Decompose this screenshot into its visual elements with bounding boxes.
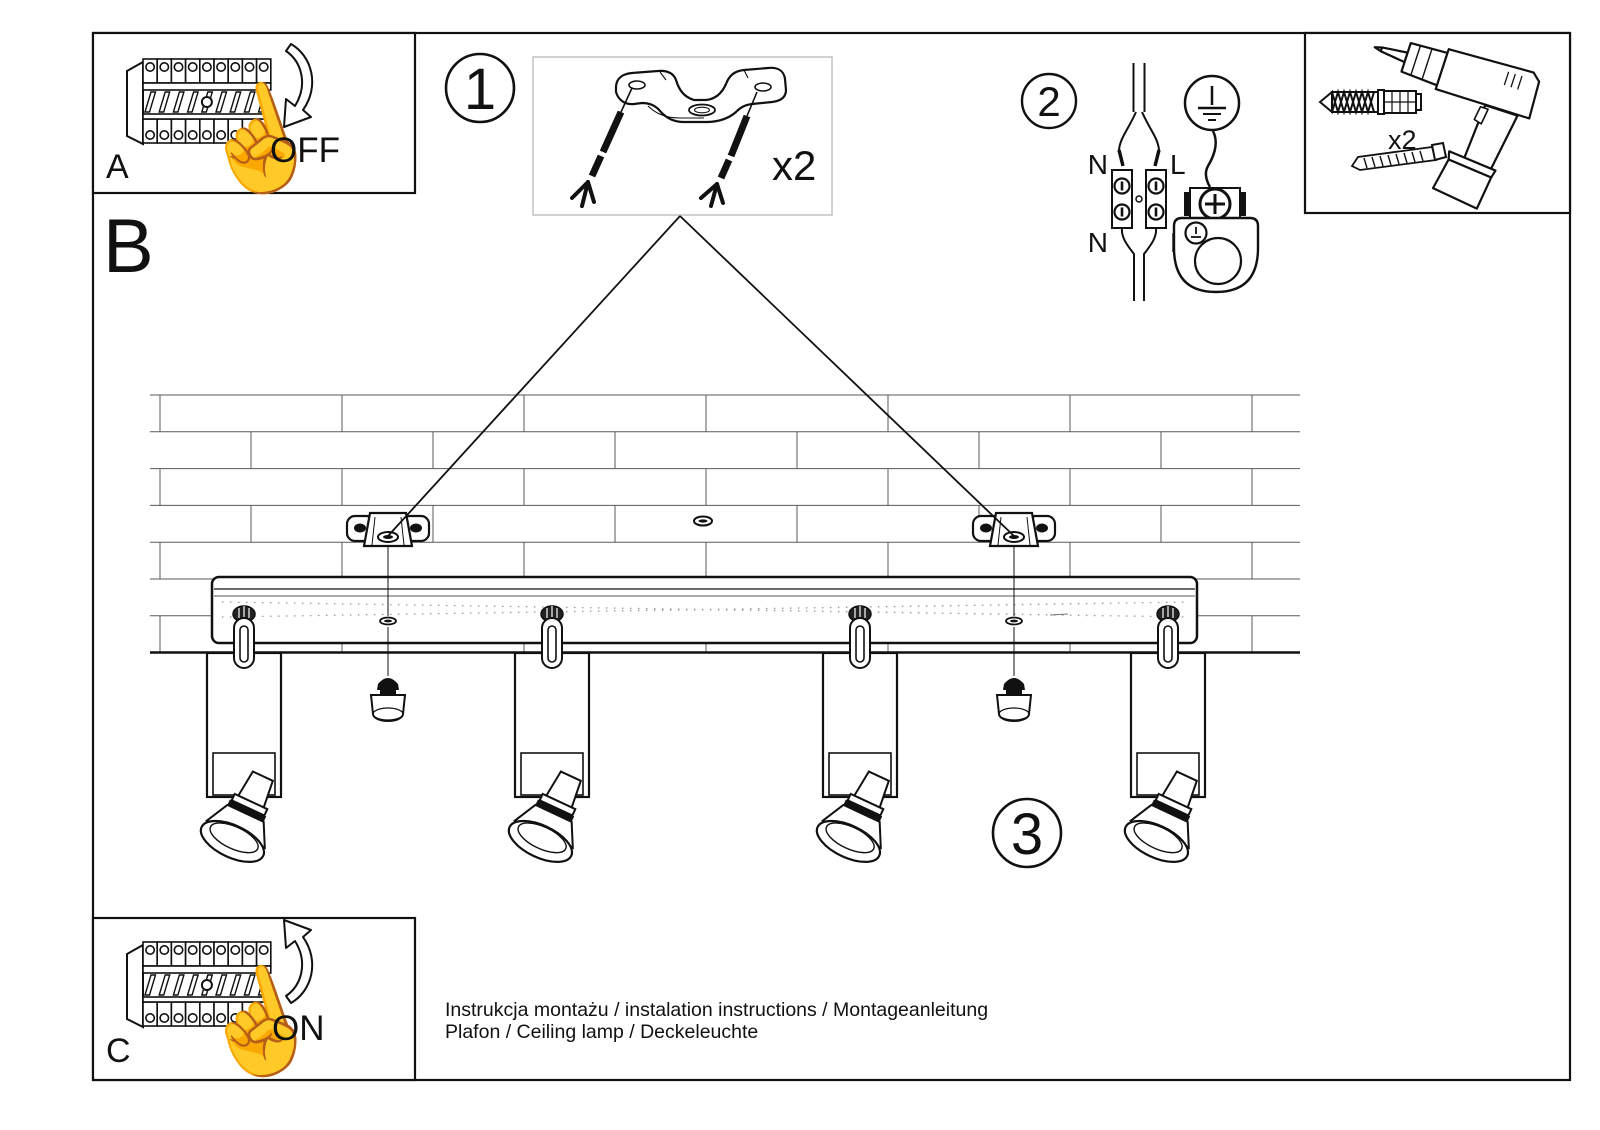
- step-1-number: 1: [464, 57, 496, 122]
- panel-c-label: C: [106, 1032, 131, 1070]
- bracket-qty-label: x2: [772, 142, 816, 189]
- step-2-number: 2: [1037, 78, 1060, 125]
- step-2-badge: 2: [1022, 74, 1076, 128]
- instruction-sheet: 1 2 3 x2: [0, 0, 1600, 1130]
- on-label: ON: [272, 1009, 325, 1048]
- step-3-number: 3: [1011, 802, 1043, 867]
- wall-mount-bracket: [973, 513, 1055, 546]
- wall-anchor-part: [1320, 90, 1421, 114]
- off-label: OFF: [270, 131, 340, 170]
- lamp-rail: [212, 577, 1197, 643]
- panel-a-label: A: [106, 148, 129, 186]
- step-1-badge: 1: [446, 54, 514, 122]
- earth-terminal-part: [1174, 188, 1258, 292]
- wire-l-top-label: L: [1170, 149, 1186, 180]
- wire-n-bottom-label: N: [1088, 227, 1108, 258]
- wire-n-top-label: N: [1088, 149, 1108, 180]
- footer-product-line: Plafon / Ceiling lamp / Deckeleuchte: [445, 1021, 758, 1043]
- footer-title-line: Instrukcja montażu / instalation instruc…: [445, 999, 988, 1021]
- instruction-artwork: 1 2 3 x2: [0, 0, 1600, 1130]
- step-3-badge: 3: [993, 799, 1061, 867]
- panel-b-label: B: [103, 204, 154, 289]
- wall-hole: [694, 517, 712, 526]
- wall-mount-bracket: [347, 513, 429, 546]
